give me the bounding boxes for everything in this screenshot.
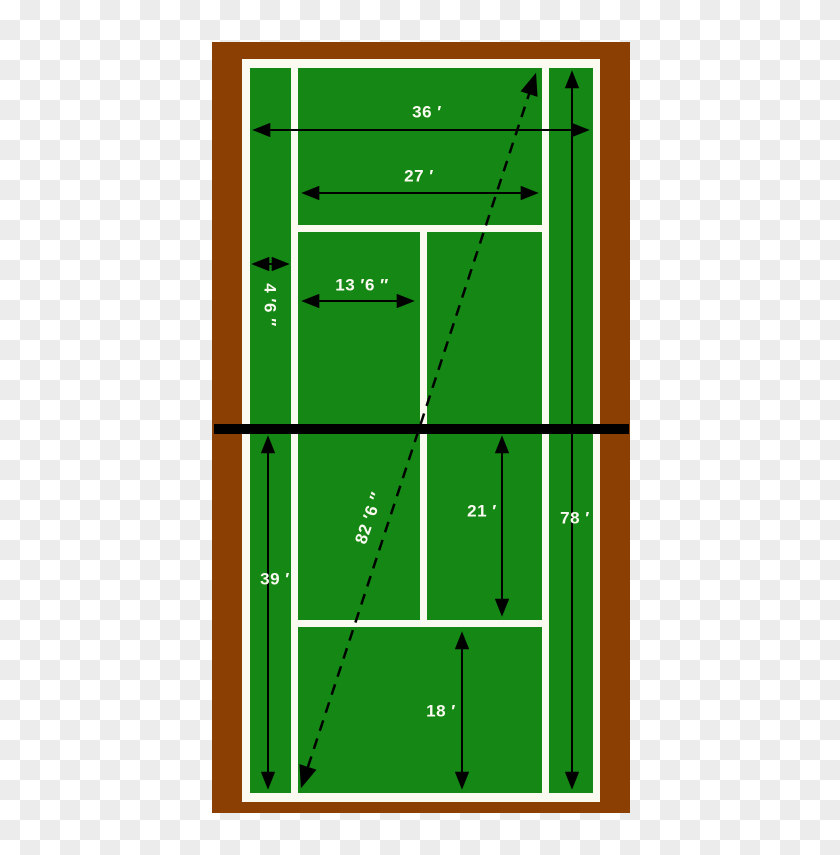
- tennis-court-diagram: 36 ′ 27 ′ 4 ′6 ″ 13 ′6 ″ 82 ′6 ″ 21 ′ 78…: [0, 0, 840, 855]
- dim-label-half-court: 39 ′: [260, 571, 290, 588]
- dim-label-court-length: 78 ′: [560, 510, 590, 527]
- court-surround: [212, 42, 630, 813]
- dim-label-alley-width: 4 ′6 ″: [262, 283, 279, 327]
- dim-label-service-box-width: 13 ′6 ″: [335, 277, 389, 294]
- service-line-top: [298, 225, 542, 232]
- dim-label-overall-width: 36 ′: [412, 104, 442, 121]
- dim-label-singles-width: 27 ′: [404, 168, 434, 185]
- dim-label-service-depth: 21 ′: [467, 503, 497, 520]
- service-line-bottom: [298, 620, 542, 627]
- dim-label-backcourt-depth: 18 ′: [426, 703, 456, 720]
- net-line: [214, 424, 629, 434]
